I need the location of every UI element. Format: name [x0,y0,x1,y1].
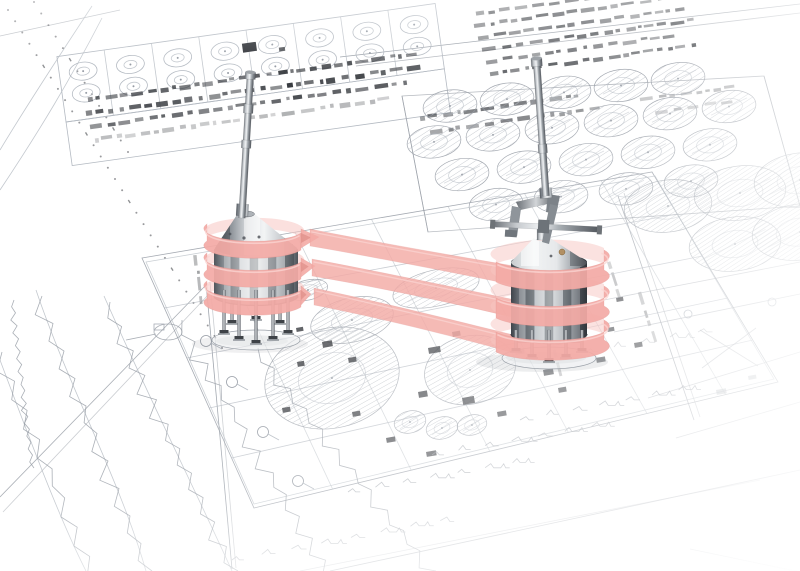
scene-canvas [0,0,800,571]
shaft-coupling [243,104,253,114]
leg-foot [220,330,229,333]
leg-base-plate [218,333,230,335]
leg-foot [269,336,278,339]
leg-base-plate [267,339,279,341]
shaft-coupling [241,140,251,149]
cone-sight-glass [559,249,565,255]
leg-foot [276,320,285,323]
vessel-leg [254,290,257,342]
leg-foot [228,320,237,323]
cone-bolt [258,236,261,239]
leg-base-plate [233,339,245,341]
cross-rod-end-cap [490,220,495,229]
leg-base-plate [226,323,238,325]
leg-base-plate [274,323,286,325]
leg-foot [252,340,261,343]
leg-foot [235,336,244,339]
leg-base-plate [543,361,555,363]
cone-bolt [229,233,232,236]
cross-rod-clamp [538,220,550,234]
leg-base-plate [250,343,262,345]
shaft-coupling [538,144,548,154]
cone-bolt [550,255,553,258]
cross-rod-end-cap [597,225,602,234]
bracket-pad [505,230,517,238]
blueprint-render-scene [0,0,800,571]
cone-bolt [242,236,245,239]
leg-base-plate [282,333,294,335]
leg-foot [284,330,293,333]
